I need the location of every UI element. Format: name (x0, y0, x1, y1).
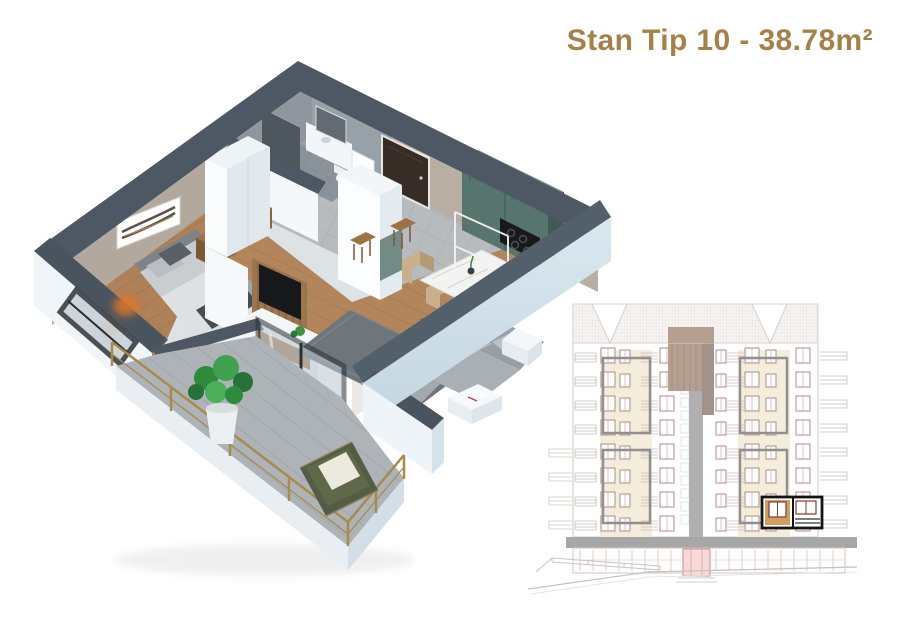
left-side-balconies (549, 449, 572, 529)
page: Stan Tip 10 - 38.78m² (0, 0, 899, 636)
roof (573, 304, 818, 343)
floor-plan (34, 61, 611, 576)
scene (0, 0, 899, 636)
plan-title: Stan Tip 10 - 38.78m² (567, 24, 873, 58)
slab-band (566, 537, 857, 548)
entrance (683, 549, 710, 576)
building-elevation (528, 304, 857, 594)
hall-bar (338, 164, 402, 300)
wardrobe (205, 136, 270, 257)
highlighted-unit (762, 497, 822, 528)
